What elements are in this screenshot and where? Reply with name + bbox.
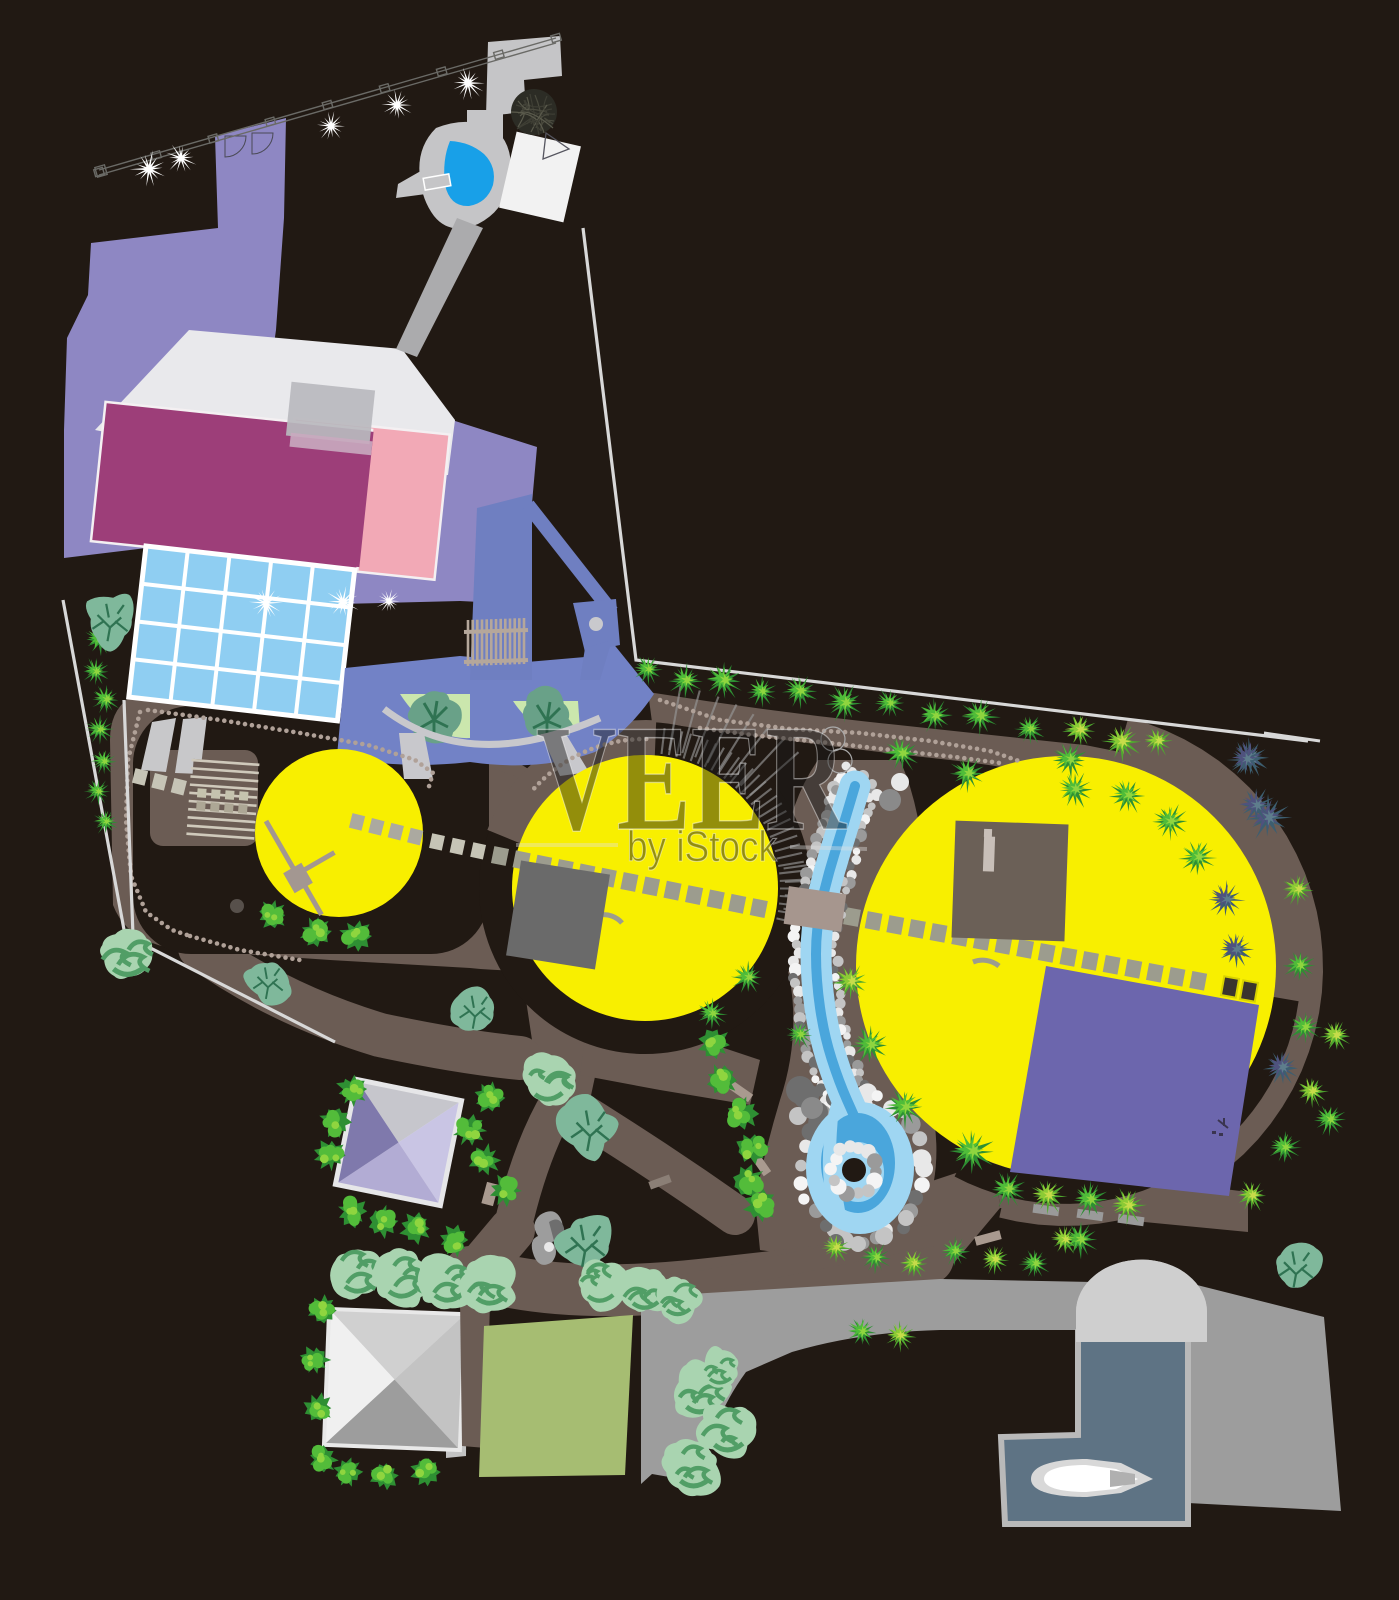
svg-text:by iStock: by iStock bbox=[627, 823, 777, 871]
